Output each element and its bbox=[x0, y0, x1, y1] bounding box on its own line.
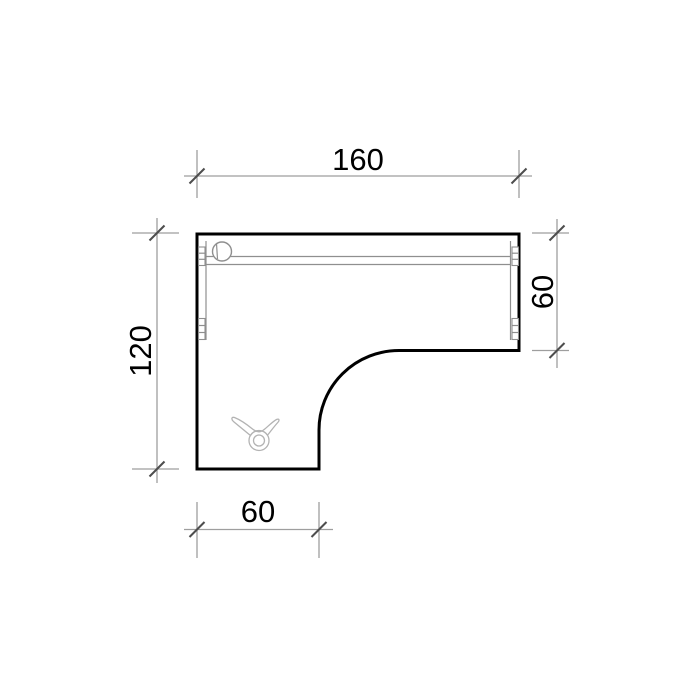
cable-grommet-icon bbox=[213, 242, 232, 261]
desk-outline-group bbox=[197, 234, 519, 469]
castor-ring-inner bbox=[254, 435, 265, 446]
dimension-right-depth: 60 bbox=[525, 219, 569, 368]
desk-plan-drawing: 160 120 60 60 bbox=[0, 0, 700, 700]
dimension-value-bottom: 60 bbox=[241, 494, 275, 529]
connector-right-bottom bbox=[512, 319, 519, 340]
connector-right-top bbox=[512, 247, 519, 266]
technical-drawing-canvas: 160 120 60 60 bbox=[0, 0, 700, 700]
grommet-circle bbox=[213, 242, 232, 261]
desk-top-outline bbox=[197, 234, 519, 469]
connector-fitting-icon bbox=[512, 247, 519, 266]
connector-fitting-icon bbox=[199, 319, 206, 340]
connector-left-bottom bbox=[199, 319, 206, 340]
dimension-top-width: 160 bbox=[184, 142, 532, 198]
dimension-bottom-width: 60 bbox=[184, 494, 333, 558]
dimension-value-top: 160 bbox=[332, 142, 384, 177]
dimension-value-right: 60 bbox=[525, 275, 560, 309]
dimension-value-left: 120 bbox=[123, 325, 158, 377]
connector-fitting-icon bbox=[512, 319, 519, 340]
connector-left-top bbox=[199, 247, 206, 266]
connector-fitting-icon bbox=[199, 247, 206, 266]
dimension-left-depth: 120 bbox=[123, 218, 179, 483]
